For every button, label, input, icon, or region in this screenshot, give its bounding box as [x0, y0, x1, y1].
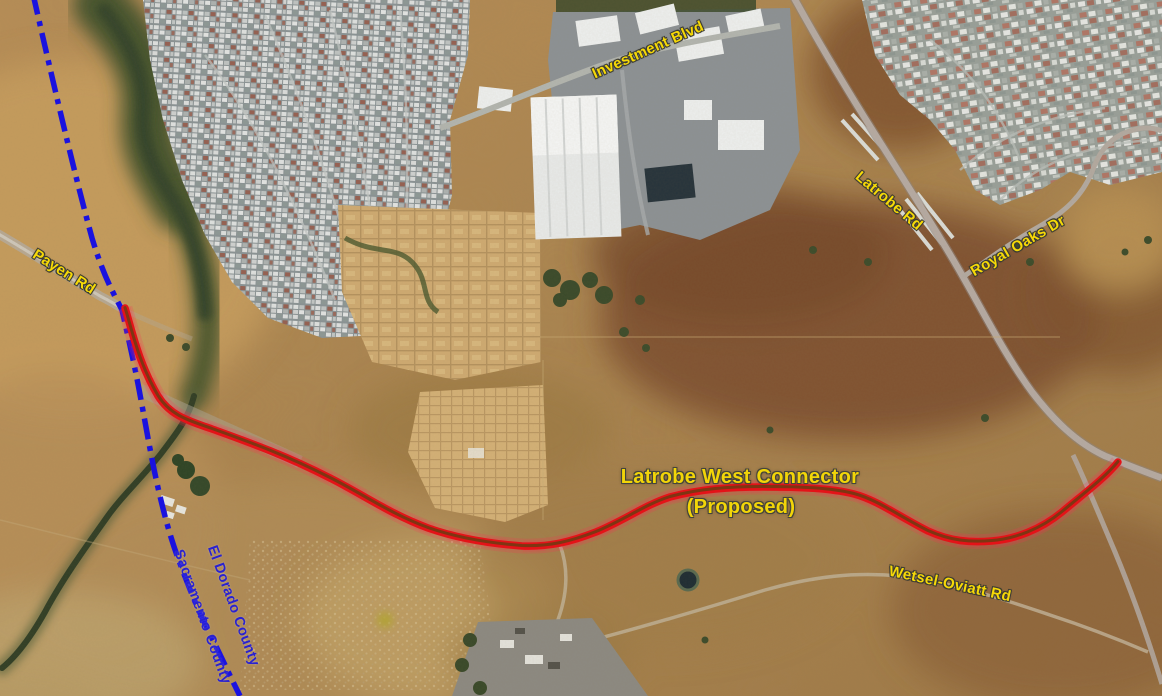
image-grain: [0, 0, 1162, 696]
satellite-map: Payen Rd Investment Blvd Latrobe Rd Roya…: [0, 0, 1162, 696]
satellite-map-canvas: [0, 0, 1162, 696]
